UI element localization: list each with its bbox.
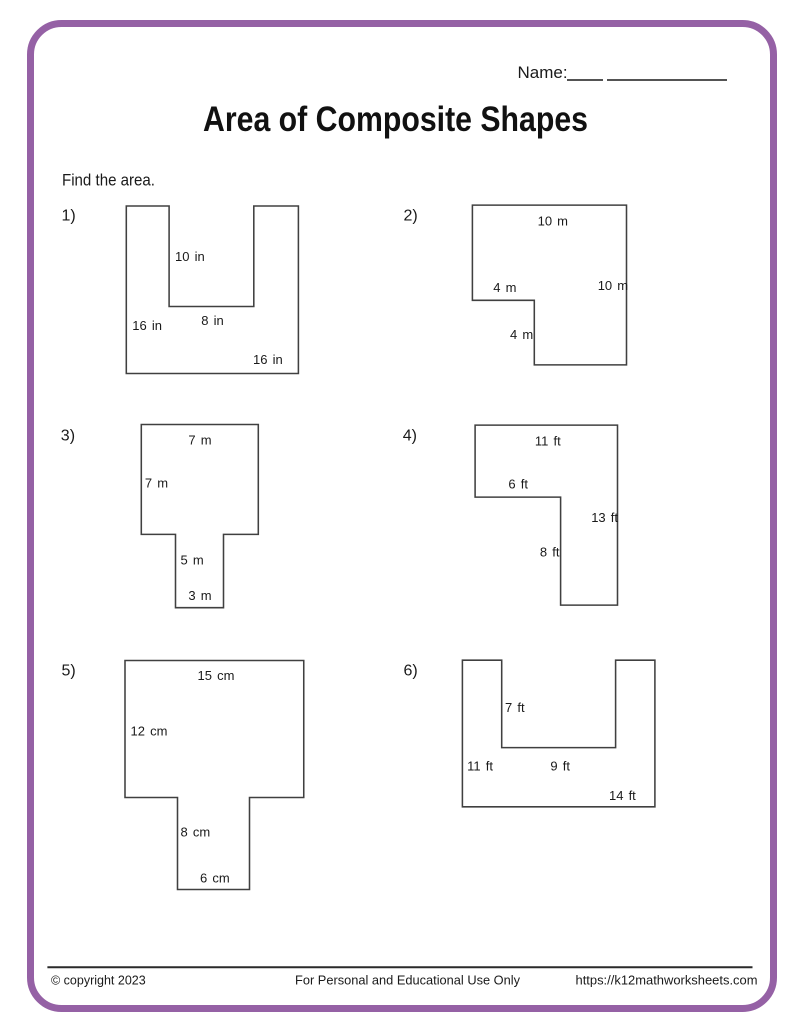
svg-text:15 cm: 15 cm [198,668,235,683]
svg-text:4): 4) [403,428,417,445]
svg-text:Find the area.: Find the area. [62,171,155,190]
svg-text:14 ft: 14 ft [609,788,636,803]
svg-text:10 m: 10 m [538,213,568,228]
svg-text:13 ft: 13 ft [591,510,618,525]
svg-text:Area of Composite Shapes: Area of Composite Shapes [203,100,588,139]
svg-text:11 ft: 11 ft [535,433,561,448]
svg-text:8 ft: 8 ft [540,545,560,560]
svg-text:2): 2) [404,208,418,225]
svg-text:10 m: 10 m [598,278,628,293]
svg-text:6): 6) [404,663,418,680]
svg-text:6 ft: 6 ft [508,477,528,492]
svg-text:3 m: 3 m [188,588,211,603]
svg-text:5): 5) [62,662,76,679]
svg-text:8 cm: 8 cm [181,824,211,839]
svg-text:5 m: 5 m [181,553,204,568]
svg-text:16 in: 16 in [253,352,283,367]
svg-text:7 m: 7 m [188,433,211,448]
svg-text:4 m: 4 m [510,327,533,342]
svg-text:8 in: 8 in [201,313,223,328]
svg-text:1): 1) [62,208,76,225]
svg-text:9 ft: 9 ft [550,759,570,774]
svg-text:12 cm: 12 cm [131,724,168,739]
svg-text:10 in: 10 in [175,249,205,264]
svg-text:Name:: Name: [518,63,568,82]
svg-text:7 m: 7 m [145,475,168,490]
svg-text:11 ft: 11 ft [467,759,493,774]
svg-text:https://k12mathworksheets.com: https://k12mathworksheets.com [576,974,758,988]
svg-text:7 ft: 7 ft [505,700,525,715]
svg-text:16 in: 16 in [132,318,162,333]
svg-text:4 m: 4 m [493,280,516,295]
svg-text:3): 3) [61,428,75,445]
svg-text:© copyright 2023: © copyright 2023 [51,974,146,988]
svg-text:6 cm: 6 cm [200,871,230,886]
svg-text:For Personal and Educational U: For Personal and Educational Use Only [295,974,521,988]
